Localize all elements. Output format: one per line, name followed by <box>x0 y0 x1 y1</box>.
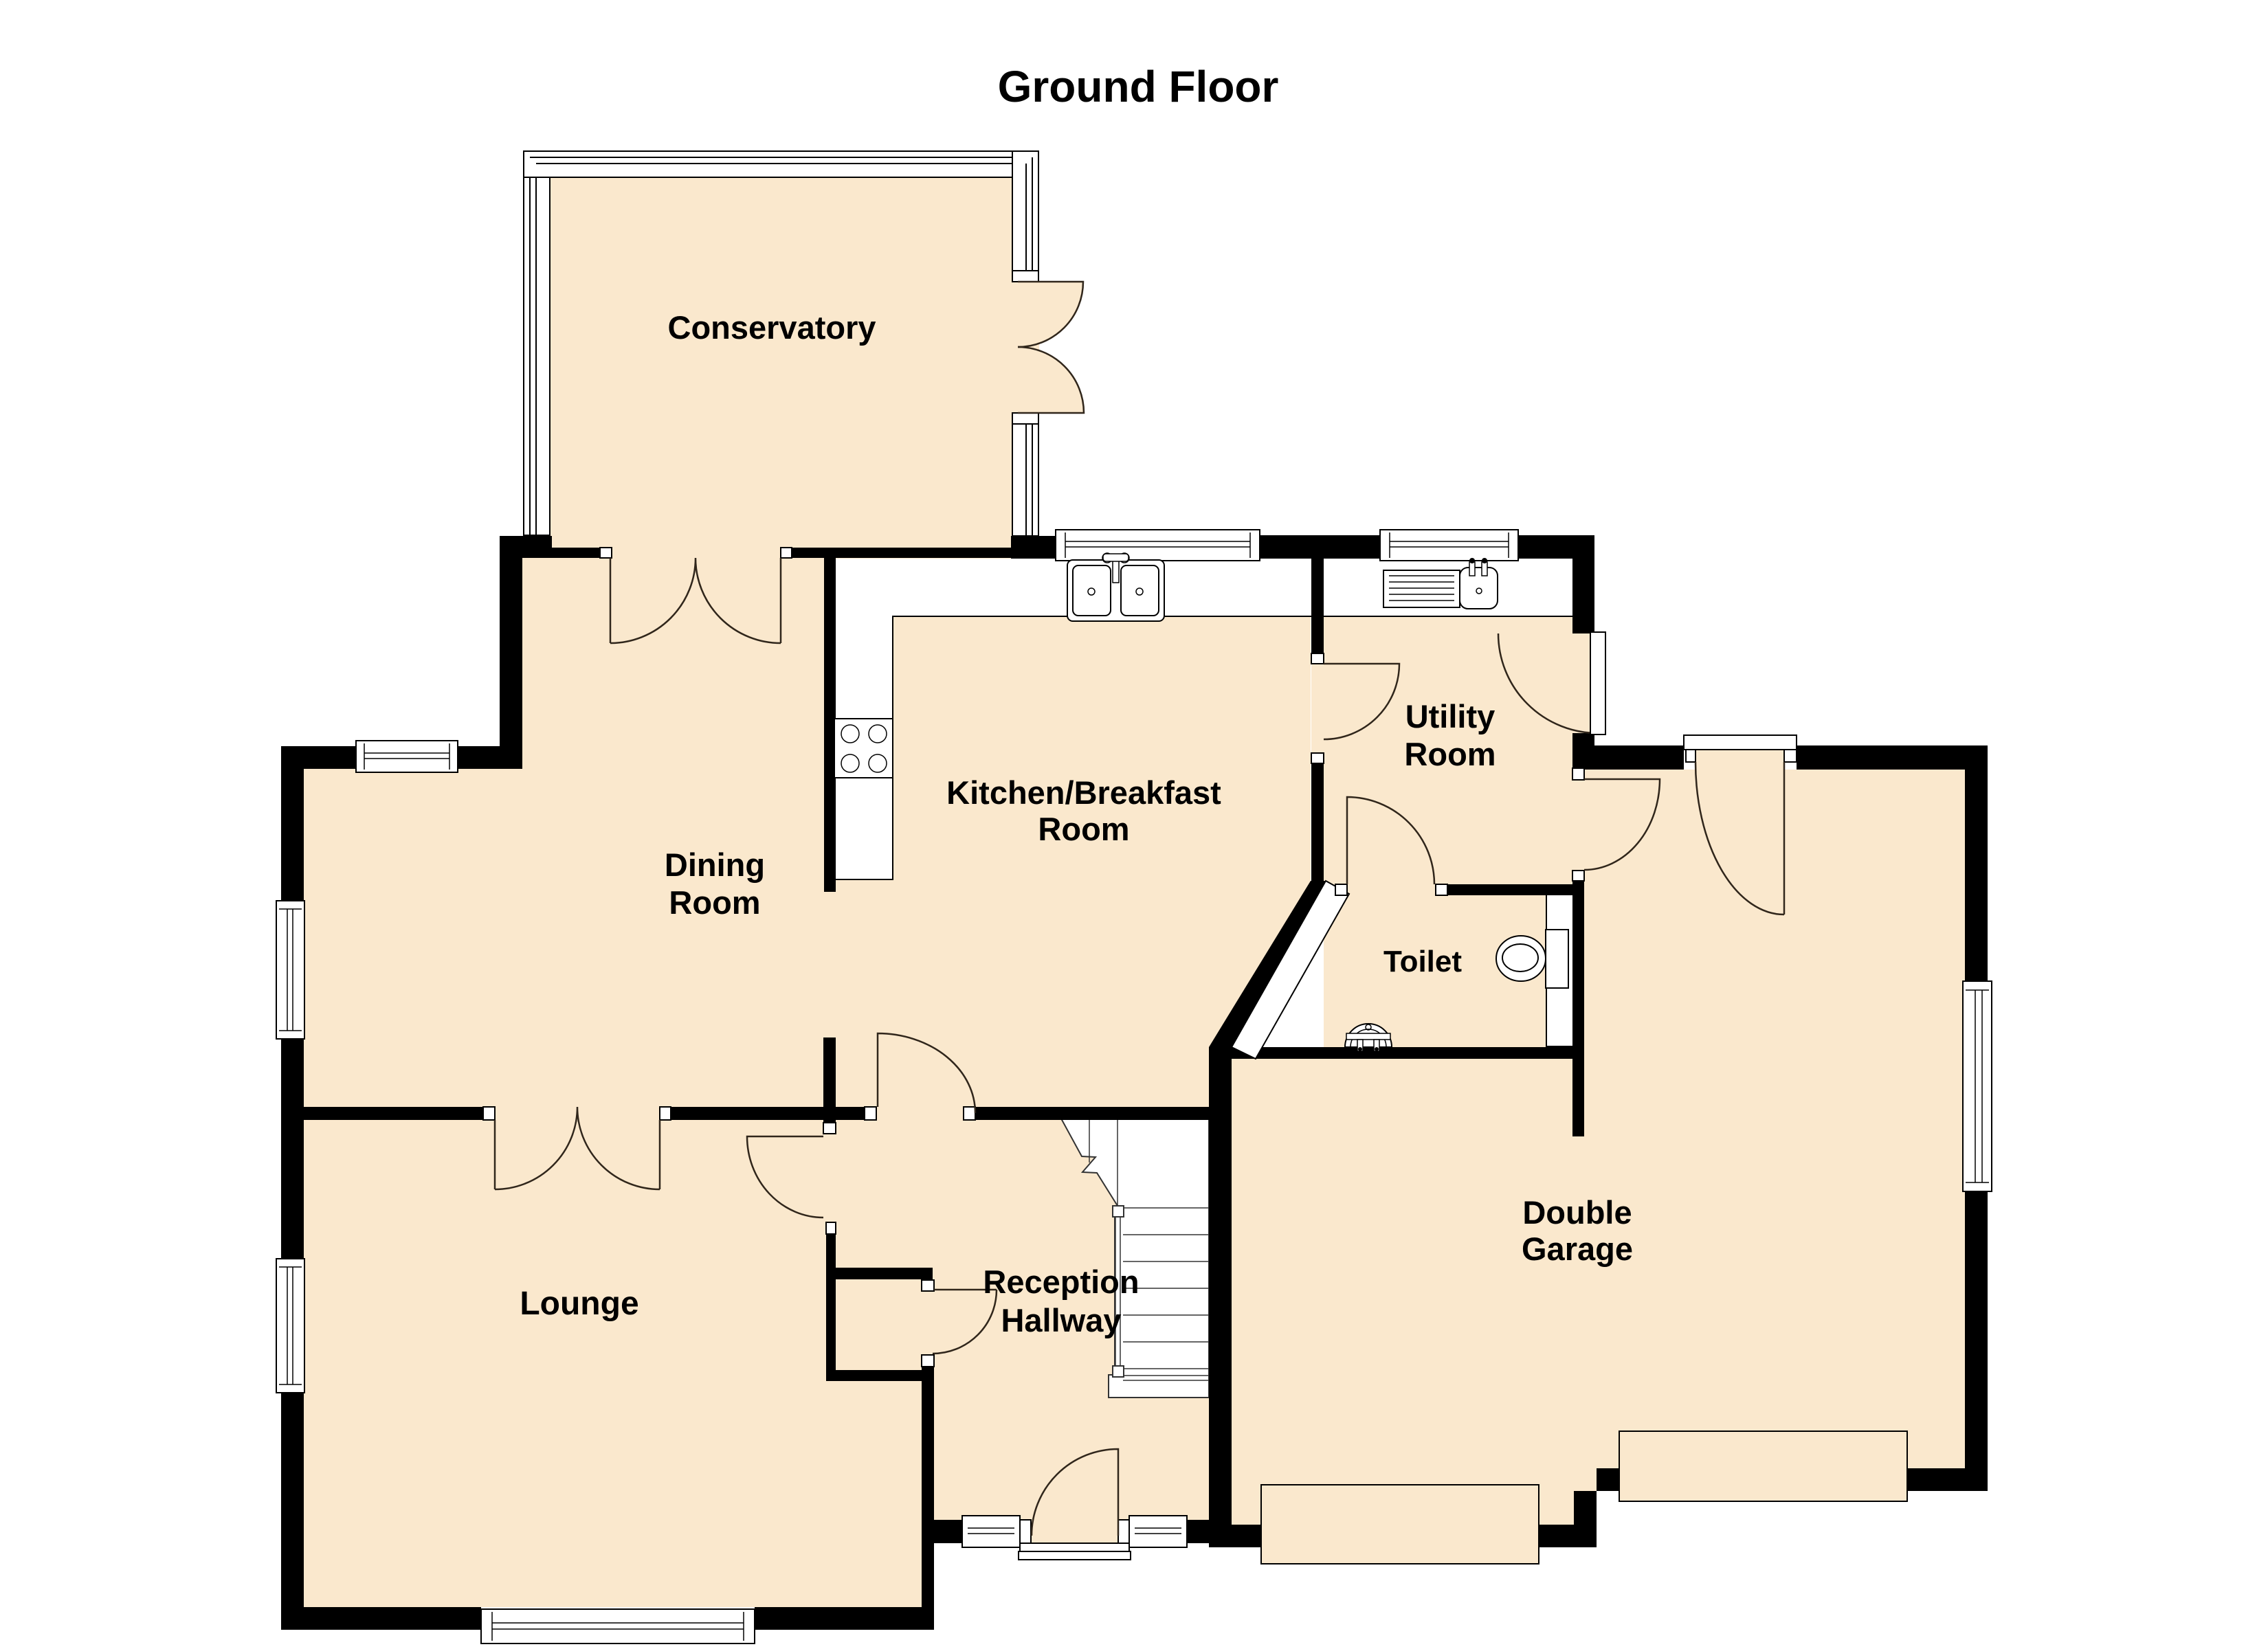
svg-text:Toilet: Toilet <box>1383 945 1462 978</box>
svg-text:Reception: Reception <box>983 1264 1139 1300</box>
svg-text:Garage: Garage <box>1522 1231 1633 1267</box>
svg-text:Room: Room <box>1038 811 1129 847</box>
svg-text:Utility: Utility <box>1405 698 1496 734</box>
svg-text:Conservatory: Conservatory <box>668 309 876 346</box>
svg-text:Room: Room <box>669 884 760 921</box>
svg-text:Double: Double <box>1522 1194 1632 1231</box>
svg-text:Hallway: Hallway <box>1001 1302 1121 1338</box>
svg-text:Lounge: Lounge <box>520 1286 638 1322</box>
svg-text:Kitchen/Breakfast: Kitchen/Breakfast <box>946 774 1221 811</box>
svg-text:Room: Room <box>1404 736 1496 772</box>
svg-text:Dining: Dining <box>665 846 765 883</box>
svg-text:Ground Floor: Ground Floor <box>998 62 1279 111</box>
